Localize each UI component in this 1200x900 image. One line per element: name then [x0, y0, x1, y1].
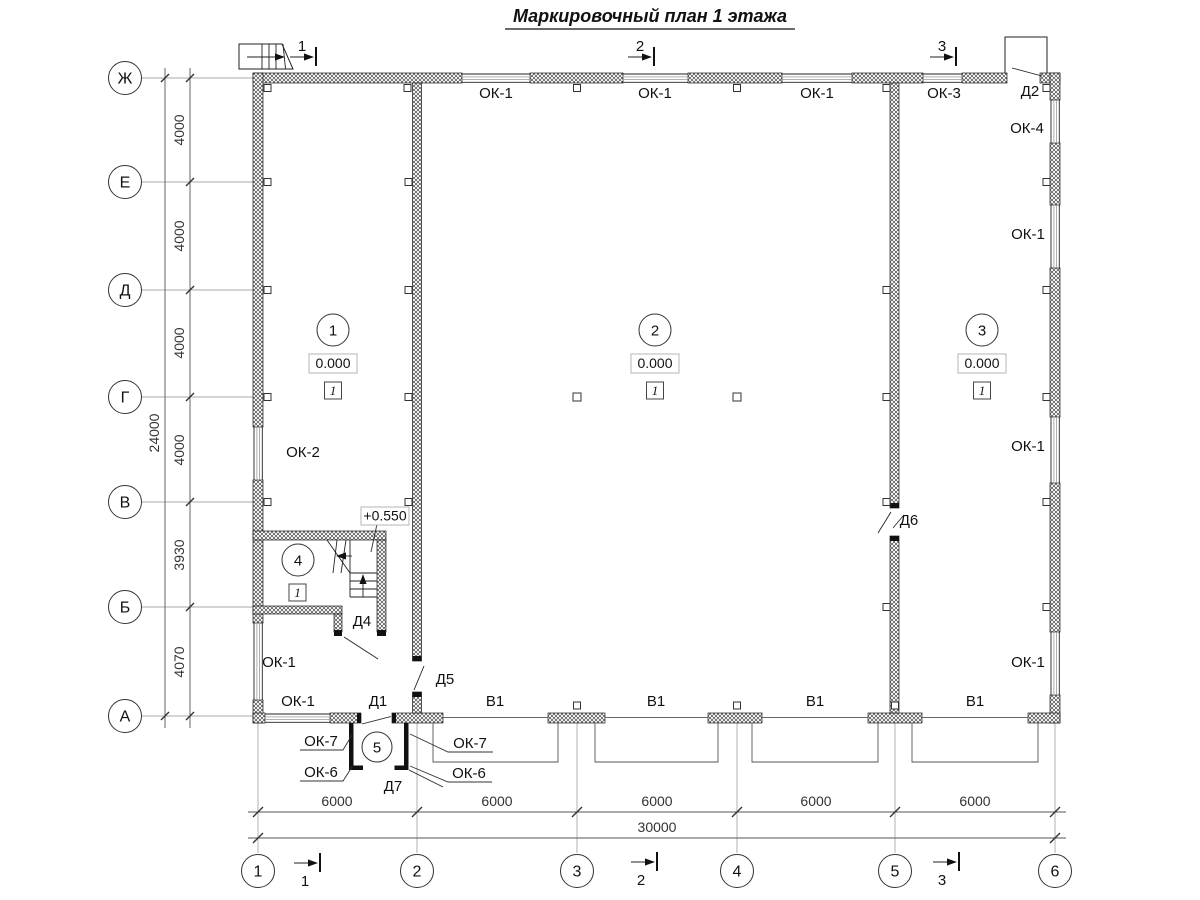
left-dimension-block: 4000 4000 4000 4000 3930 4070 24000 — [146, 68, 194, 728]
door-leaf-d1 — [362, 717, 391, 725]
door-label-d1: Д1 — [369, 693, 388, 710]
axis-label-1: 1 — [254, 864, 263, 881]
room-2-finish: 1 — [652, 383, 659, 398]
window-label-ok1-top-3: ОК-1 — [800, 85, 834, 102]
door-label-d2: Д2 — [1021, 83, 1040, 100]
section-mark-1-bottom: 1 — [301, 873, 309, 890]
dim-left-seg-6: 4070 — [171, 646, 187, 677]
room-3-elevation: 0.000 — [964, 355, 999, 371]
section-mark-3-top: 3 — [938, 38, 946, 55]
dim-bottom-seg-1: 6000 — [321, 793, 352, 809]
dim-bottom-seg-3: 6000 — [641, 793, 672, 809]
door-label-d7: Д7 — [384, 778, 403, 795]
dim-left-seg-3: 4000 — [171, 327, 187, 358]
landing-elevation: +0.550 — [363, 508, 406, 524]
free-column-g4 — [733, 393, 741, 401]
room-4-finish: 1 — [294, 585, 301, 600]
free-column-g3 — [573, 393, 581, 401]
drawing-title: Маркировочный план 1 этажа — [505, 6, 795, 29]
window-label-ok1-left: ОК-1 — [262, 654, 296, 671]
leader-lines — [300, 516, 903, 782]
room-1-number: 1 — [329, 323, 337, 340]
window-label-ok7-left: ОК-7 — [304, 733, 338, 750]
bottom-dimension-block: 6000 6000 6000 6000 6000 30000 — [248, 793, 1066, 843]
window-label-ok4: ОК-4 — [1010, 120, 1044, 137]
dim-bottom-seg-2: 6000 — [481, 793, 512, 809]
door-label-d4: Д4 — [353, 613, 372, 630]
door-leaf-d6 — [878, 512, 891, 533]
axis-label-a: А — [120, 709, 131, 726]
grid-axis-lines — [141, 78, 1055, 853]
dim-bottom-total: 30000 — [638, 819, 677, 835]
room-3-number: 3 — [978, 323, 986, 340]
axis-label-3: 3 — [573, 864, 582, 881]
floor-plan-drawing: Маркировочный план 1 этажа 4000 4000 400… — [0, 0, 1200, 900]
window-label-ok1-bottom: ОК-1 — [281, 693, 315, 710]
room-5-number: 5 — [373, 740, 381, 757]
axis-label-d: Д — [120, 283, 131, 300]
porch-outline — [1005, 37, 1047, 73]
section-mark-3-bottom: 3 — [938, 872, 946, 889]
room-2-elevation: 0.000 — [637, 355, 672, 371]
section-mark-1-top: 1 — [298, 38, 306, 55]
door-leaf-d2 — [1012, 68, 1042, 76]
room-1-finish: 1 — [330, 383, 337, 398]
dim-bottom-seg-4: 6000 — [800, 793, 831, 809]
window-label-ok1-top-1: ОК-1 — [479, 85, 513, 102]
dim-left-seg-5: 3930 — [171, 539, 187, 570]
plan-canvas: Маркировочный план 1 этажа 4000 4000 400… — [0, 0, 1200, 900]
dim-left-total: 24000 — [146, 413, 162, 452]
dim-left-seg-1: 4000 — [171, 114, 187, 145]
window-label-ok6-right: ОК-6 — [452, 765, 486, 782]
axis-label-2: 2 — [413, 864, 422, 881]
door-leaf-d5 — [414, 666, 424, 690]
window-label-ok1-right-2: ОК-1 — [1011, 438, 1045, 455]
section-mark-2-top: 2 — [636, 38, 644, 55]
gate-symbols — [433, 718, 1038, 763]
door-label-d5: Д5 — [436, 671, 455, 688]
axis-label-4: 4 — [733, 864, 742, 881]
axis-label-e: Е — [120, 175, 131, 192]
window-label-ok3: ОК-3 — [927, 85, 961, 102]
axis-label-5: 5 — [891, 864, 900, 881]
gate-label-v1-2: В1 — [647, 693, 665, 710]
window-label-ok6-left: ОК-6 — [304, 764, 338, 781]
dim-left-seg-4: 4000 — [171, 434, 187, 465]
room-4-number: 4 — [294, 553, 302, 570]
section-mark-2-bottom: 2 — [637, 872, 645, 889]
stairs — [327, 540, 377, 597]
exterior-stair — [239, 44, 293, 69]
gate-label-v1-3: В1 — [806, 693, 824, 710]
window-label-ok2: ОК-2 — [286, 444, 320, 461]
page-title: Маркировочный план 1 этажа — [513, 6, 787, 26]
gate-label-v1-4: В1 — [966, 693, 984, 710]
axis-label-b: Б — [120, 600, 131, 617]
gate-label-v1-1: В1 — [486, 693, 504, 710]
door-leaf-d4 — [344, 637, 378, 659]
axis-circles-left: Ж Е Д Г В Б А — [109, 62, 142, 733]
dim-left-seg-2: 4000 — [171, 220, 187, 251]
window-label-ok1-right-3: ОК-1 — [1011, 654, 1045, 671]
axis-label-v: В — [120, 495, 131, 512]
axis-label-zh: Ж — [118, 71, 133, 88]
door-label-d6: Д6 — [900, 512, 919, 529]
window-label-ok7-right: ОК-7 — [453, 735, 487, 752]
window-label-ok1-right-1: ОК-1 — [1011, 226, 1045, 243]
room-1-elevation: 0.000 — [315, 355, 350, 371]
opening-labels: ОК-1 ОК-1 ОК-1 ОК-3 Д2 ОК-4 ОК-1 ОК-1 ОК… — [262, 83, 1045, 795]
axis-label-6: 6 — [1051, 864, 1060, 881]
axis-label-g: Г — [121, 390, 130, 407]
dim-bottom-seg-5: 6000 — [959, 793, 990, 809]
window-label-ok1-top-2: ОК-1 — [638, 85, 672, 102]
room-3-finish: 1 — [979, 383, 986, 398]
room-2-number: 2 — [651, 323, 659, 340]
